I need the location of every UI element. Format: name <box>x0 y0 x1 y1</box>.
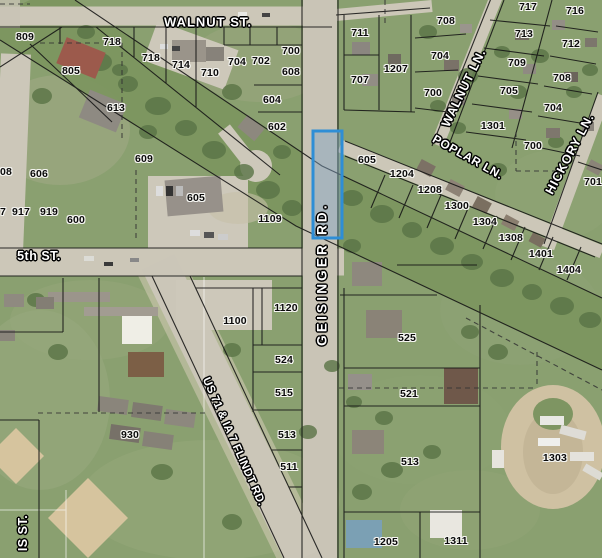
highlighted-parcel[interactable] <box>313 131 342 238</box>
map-viewport[interactable]: 8097187188057147107047027006086046026136… <box>0 0 602 558</box>
aerial-basemap <box>0 0 602 558</box>
